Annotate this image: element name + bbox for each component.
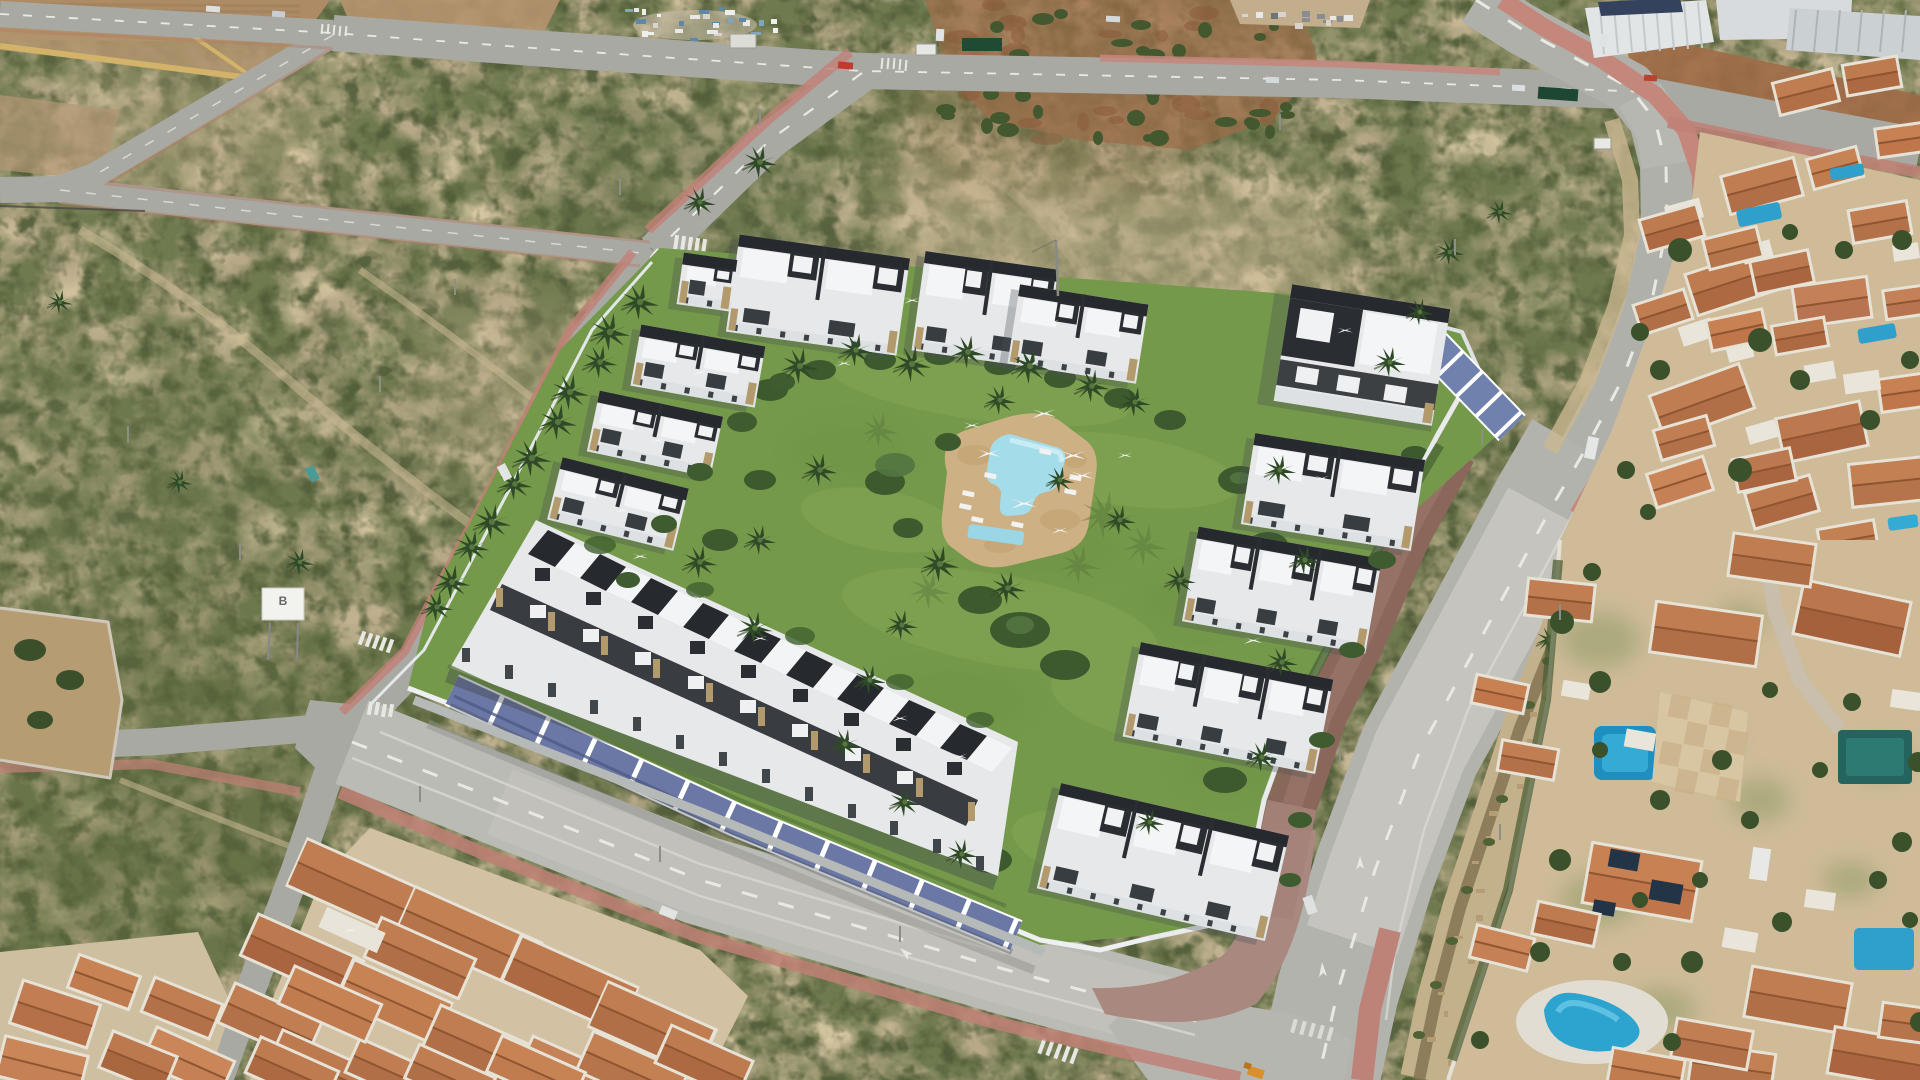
svg-text:B: B: [279, 594, 288, 608]
